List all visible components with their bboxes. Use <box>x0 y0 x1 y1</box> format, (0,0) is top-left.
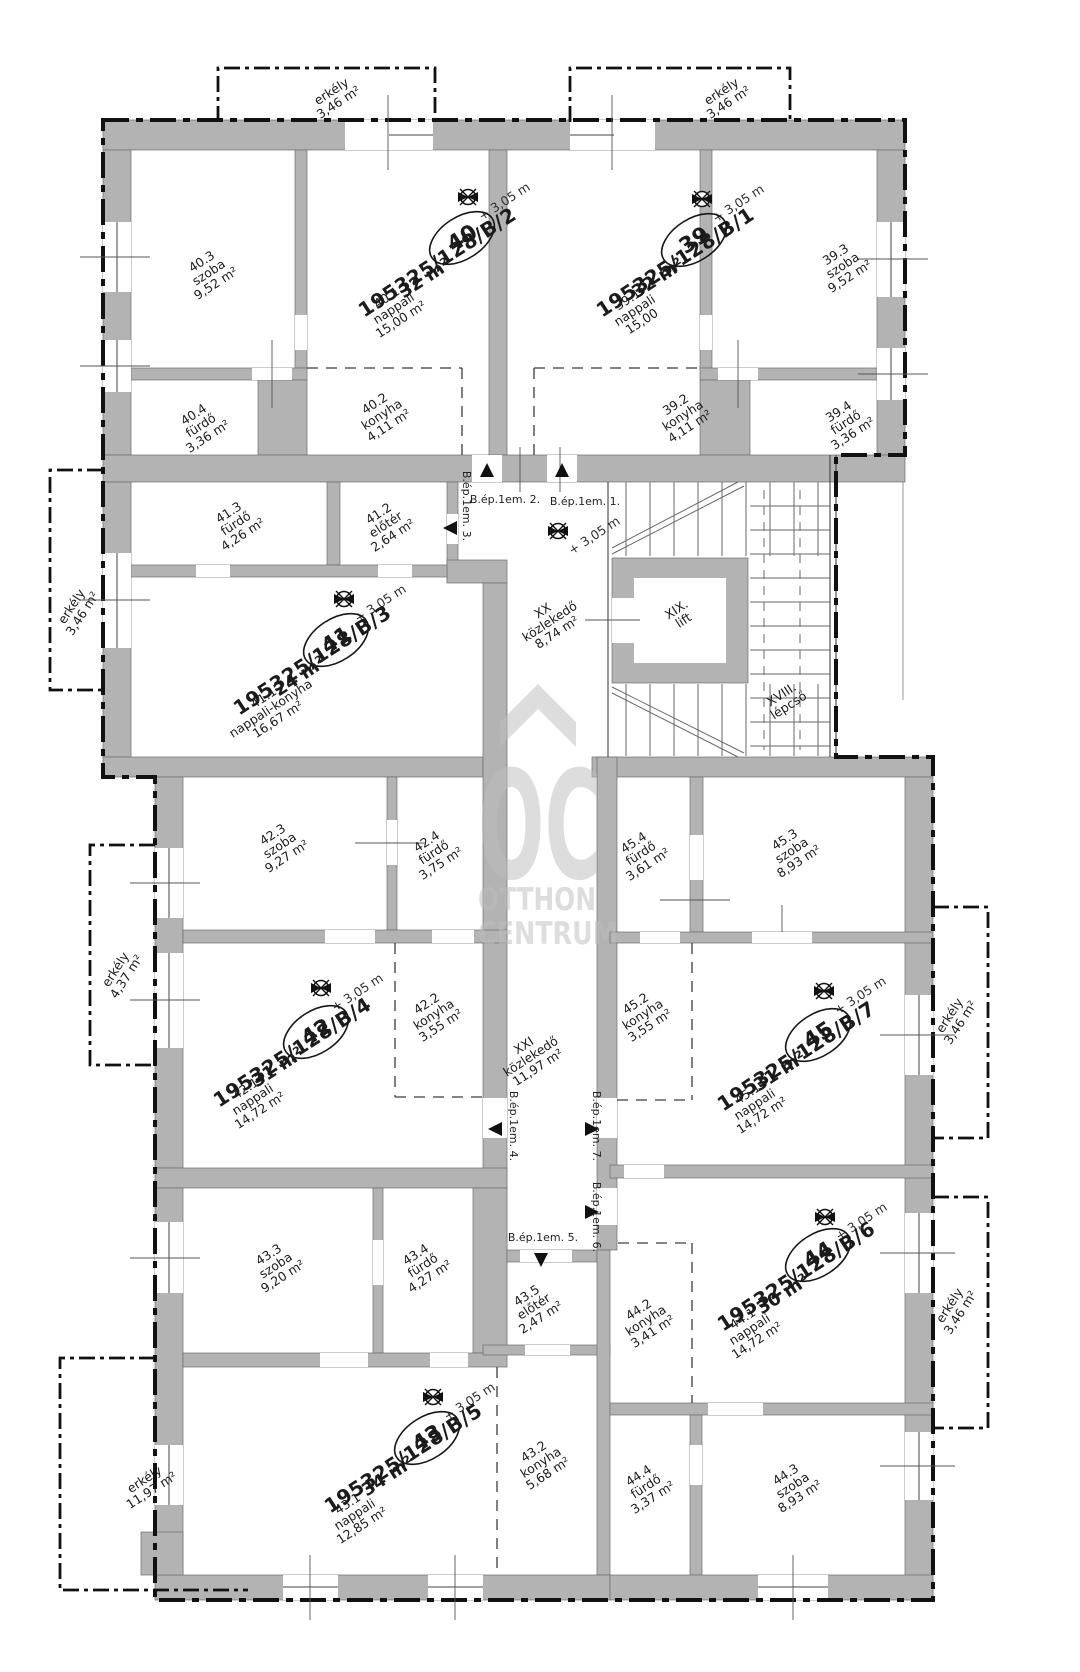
room-label-40-4: 40.4fürdő3,36 m² <box>169 395 232 456</box>
level-marker-icon: + 3,05 m <box>548 513 623 557</box>
entrance-label-3: B.ép.1em. 3. <box>460 471 473 541</box>
entrance-label-2: B.ép.1em. 2. <box>470 493 540 506</box>
balcony-label-42: erkély4,37 m² <box>96 945 146 1001</box>
room-label-44-4: 44.4fürdő3,37 m² <box>614 1456 677 1517</box>
room-label-39-4: 39.4fürdő3,36 m² <box>814 392 877 453</box>
stairs-label: XVIII.lépcső <box>760 677 809 722</box>
floor-plan-page: + 3,05 m + 3,05 m + 3,05 m + 3,05 m + 3,… <box>0 0 1080 1672</box>
entrance-label-5: B.ép.1em. 5. <box>508 1231 578 1244</box>
room-label-45-2: 45.2konyha3,55 m² <box>611 984 674 1045</box>
watermark-roof-icon <box>500 684 576 747</box>
room-label-44-3: 44.3szoba8,93 m² <box>761 1455 824 1516</box>
room-label-42-2: 42.2konyha3,55 m² <box>402 984 465 1045</box>
watermark-line1: OTTHON <box>478 882 596 918</box>
room-label-42-4: 42.4fürdő3,75 m² <box>402 822 465 883</box>
room-label-42-3: 42.3szoba9,27 m² <box>248 815 311 876</box>
entrance-label-7: B.ép.1em. 7. <box>590 1091 603 1161</box>
watermark-line2: CENTRUM <box>478 916 618 952</box>
corridor-upper-label: XXközlekedő8,74 m² <box>512 587 587 655</box>
room-label-41-2: 41.2előtér2,64 m² <box>354 494 417 555</box>
room-label-40-2: 40.2konyha4,11 m² <box>350 384 413 445</box>
level-value: + 3,05 m <box>565 513 622 557</box>
room-label-41-3: 41.3fürdő4,26 m² <box>204 493 267 554</box>
entrance-label-1: B.ép.1em. 1. <box>550 495 620 508</box>
entrance-label-6: B.ép.1em. 6. <box>590 1182 603 1252</box>
balcony-label-44: erkély3,46 m² <box>930 1281 980 1337</box>
balcony-label-41: erkély3,46 m² <box>52 582 102 638</box>
room-label-39-3: 39.3szoba9,52 m² <box>811 235 874 296</box>
apartment-42: 195325/128/B/4 42 31 m² 42.1nappali14,72… <box>96 815 466 1132</box>
room-label-44-2: 44.2konyha3,41 m² <box>614 1290 677 1351</box>
entrance-label-4: B.ép.1em. 4. <box>507 1091 520 1161</box>
balcony-label-45: erkély3,46 m² <box>930 991 980 1047</box>
room-label-40-3: 40.3szoba9,52 m² <box>177 242 240 303</box>
room-label-43-5: 43.5előtér2,47 m² <box>502 1276 565 1337</box>
room-label-43-4: 43.4fürdő4,27 m² <box>391 1235 454 1296</box>
context-lines <box>836 462 903 700</box>
room-label-43-2: 43.2konyha5,68 m² <box>509 1432 572 1493</box>
balcony-label-39: erkély3,46 m² <box>697 72 753 122</box>
floor-plan-drawing: + 3,05 m + 3,05 m + 3,05 m + 3,05 m + 3,… <box>0 0 1080 1672</box>
room-label-43-3: 43.3szoba9,20 m² <box>244 1235 307 1296</box>
room-label-45-4: 45.4fürdő3,61 m² <box>609 823 672 884</box>
balcony-label-40: erkély3,46 m² <box>307 72 363 122</box>
room-label-45-3: 45.3szoba8,93 m² <box>760 820 823 881</box>
